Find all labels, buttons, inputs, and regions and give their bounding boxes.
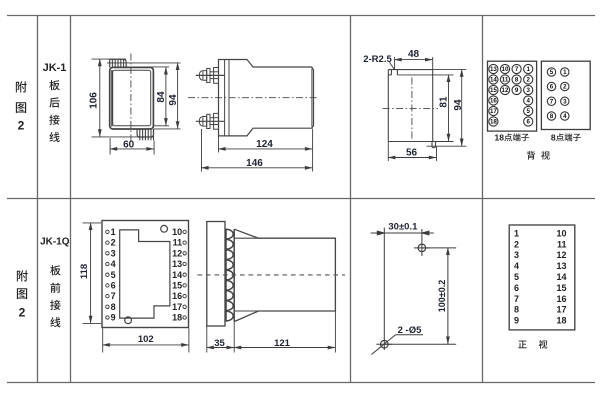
svg-text:6: 6 xyxy=(526,119,530,126)
svg-text:16: 16 xyxy=(172,291,182,301)
svg-text:9: 9 xyxy=(514,316,519,326)
svg-text:18: 18 xyxy=(490,119,497,126)
svg-text:11: 11 xyxy=(557,239,567,249)
svg-text:8: 8 xyxy=(514,305,519,315)
svg-text:6: 6 xyxy=(111,281,116,291)
svg-text:35: 35 xyxy=(214,338,225,349)
svg-text:17: 17 xyxy=(490,108,497,115)
svg-text:13: 13 xyxy=(172,259,182,269)
svg-text:1: 1 xyxy=(111,227,116,237)
svg-text:13: 13 xyxy=(556,261,566,271)
svg-text:3: 3 xyxy=(514,250,519,260)
svg-text:15: 15 xyxy=(172,281,182,291)
svg-text:1: 1 xyxy=(514,228,519,238)
svg-text:6: 6 xyxy=(550,84,554,91)
svg-text:10: 10 xyxy=(556,228,566,238)
svg-text:15: 15 xyxy=(556,283,566,293)
svg-text:5: 5 xyxy=(514,272,519,282)
svg-text:17: 17 xyxy=(172,302,182,312)
svg-text:17: 17 xyxy=(556,305,566,315)
svg-text:94: 94 xyxy=(168,94,179,106)
svg-text:18: 18 xyxy=(556,316,566,326)
svg-text:94: 94 xyxy=(453,99,464,111)
svg-text:16: 16 xyxy=(556,294,566,304)
svg-text:18: 18 xyxy=(495,133,505,143)
svg-text:84: 84 xyxy=(156,91,167,103)
svg-text:118: 118 xyxy=(79,264,90,279)
svg-text:9: 9 xyxy=(111,313,116,323)
svg-text:2 -Ø5: 2 -Ø5 xyxy=(398,325,422,336)
svg-text:8: 8 xyxy=(515,77,519,84)
svg-text:124: 124 xyxy=(256,139,273,150)
svg-text:5: 5 xyxy=(526,108,530,115)
svg-text:2: 2 xyxy=(526,77,530,84)
svg-text:10: 10 xyxy=(172,227,182,237)
svg-text:146: 146 xyxy=(246,158,263,169)
svg-text:2: 2 xyxy=(111,238,116,248)
svg-text:16: 16 xyxy=(490,98,497,105)
svg-text:12: 12 xyxy=(172,248,182,258)
svg-text:56: 56 xyxy=(406,148,418,159)
svg-text:JK-1: JK-1 xyxy=(43,62,67,74)
svg-text:12: 12 xyxy=(556,250,566,260)
svg-text:2: 2 xyxy=(514,239,519,249)
svg-text:1: 1 xyxy=(526,66,530,73)
svg-text:3: 3 xyxy=(111,248,116,258)
svg-text:60: 60 xyxy=(123,140,135,151)
svg-text:81: 81 xyxy=(438,96,449,108)
svg-text:1: 1 xyxy=(563,69,567,76)
svg-text:11: 11 xyxy=(502,77,509,84)
svg-text:6: 6 xyxy=(514,283,519,293)
svg-text:5: 5 xyxy=(111,270,116,280)
svg-text:2: 2 xyxy=(563,84,567,91)
svg-text:30±0.1: 30±0.1 xyxy=(388,222,418,233)
svg-text:7: 7 xyxy=(515,66,519,73)
svg-text:14: 14 xyxy=(490,77,497,84)
svg-text:3: 3 xyxy=(526,87,530,94)
svg-text:106: 106 xyxy=(88,92,99,109)
svg-text:3: 3 xyxy=(563,99,567,106)
svg-text:15: 15 xyxy=(490,87,497,94)
svg-text:121: 121 xyxy=(274,338,291,349)
svg-text:2: 2 xyxy=(19,306,26,320)
svg-text:8: 8 xyxy=(111,302,116,312)
svg-text:102: 102 xyxy=(138,334,154,345)
svg-text:12: 12 xyxy=(502,87,509,94)
svg-text:18: 18 xyxy=(172,313,182,323)
svg-text:7: 7 xyxy=(550,99,554,106)
svg-text:7: 7 xyxy=(514,294,519,304)
svg-text:JK-1Q: JK-1Q xyxy=(40,236,70,247)
svg-text:14: 14 xyxy=(556,272,566,282)
svg-text:9: 9 xyxy=(515,87,519,94)
svg-text:4: 4 xyxy=(111,259,116,269)
svg-text:100±0.2: 100±0.2 xyxy=(437,280,447,312)
svg-text:4: 4 xyxy=(514,261,519,271)
svg-text:11: 11 xyxy=(173,238,183,248)
svg-text:14: 14 xyxy=(172,270,182,280)
svg-text:4: 4 xyxy=(526,98,530,105)
svg-text:48: 48 xyxy=(408,49,420,60)
svg-text:8: 8 xyxy=(550,113,554,120)
svg-text:4: 4 xyxy=(563,113,567,120)
svg-text:2-R2.5: 2-R2.5 xyxy=(363,54,392,65)
svg-text:8: 8 xyxy=(551,133,556,143)
svg-text:13: 13 xyxy=(490,66,497,73)
svg-text:5: 5 xyxy=(550,69,554,76)
svg-text:7: 7 xyxy=(111,291,116,301)
svg-text:10: 10 xyxy=(502,66,509,73)
svg-text:2: 2 xyxy=(18,119,25,133)
